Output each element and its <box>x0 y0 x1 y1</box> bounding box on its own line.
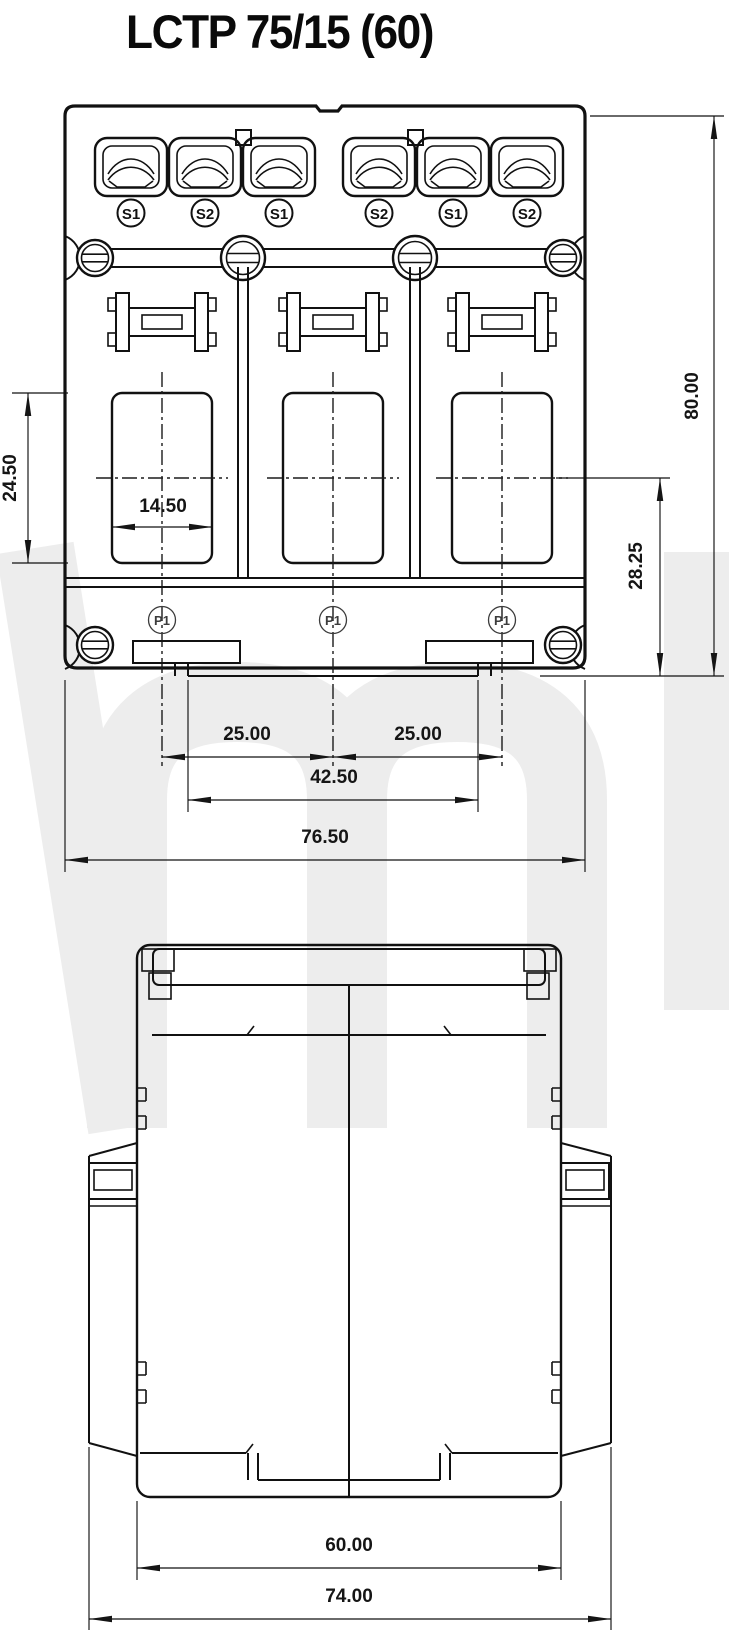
terminal-clamps <box>95 138 563 196</box>
primary-terminal-label: P1 <box>154 613 170 628</box>
fixing-screw <box>221 236 265 280</box>
terminal-clamp <box>243 138 315 196</box>
secondary-terminal-labels: S1 S2 S1 S2 S1 S2 <box>118 200 541 227</box>
primary-terminal-label: P1 <box>325 613 341 628</box>
svg-text:25.00: 25.00 <box>394 724 442 745</box>
screw-recess-scallops <box>65 236 585 669</box>
corner-screw <box>545 627 581 663</box>
terminal-label: S2 <box>518 206 536 223</box>
corner-screw <box>77 240 113 276</box>
watermark-logo <box>35 548 697 1128</box>
right-flange <box>561 1143 611 1456</box>
fixing-screw <box>393 236 437 280</box>
technical-drawing: S1 S2 S1 S2 S1 S2 <box>0 0 729 1637</box>
drawing-page: LCTP 75/15 (60) <box>0 0 729 1637</box>
terminal-label: S1 <box>444 206 462 223</box>
primary-terminal-label: P1 <box>494 613 510 628</box>
terminal-label: S2 <box>196 206 214 223</box>
terminal-clamp <box>417 138 489 196</box>
terminal-clamp <box>343 138 415 196</box>
svg-text:42.50: 42.50 <box>310 767 358 788</box>
terminal-label: S1 <box>270 206 288 223</box>
dim-window-height: 24.50 <box>0 393 68 563</box>
dim-body-width: 60.00 <box>137 1501 561 1580</box>
bottom-panel: P1 P1 P1 <box>66 578 584 663</box>
svg-text:80.00: 80.00 <box>682 372 703 420</box>
terminal-clamp <box>169 138 241 196</box>
svg-text:14.50: 14.50 <box>139 496 187 517</box>
left-flange <box>89 1143 137 1456</box>
svg-text:60.00: 60.00 <box>325 1535 373 1556</box>
corner-screw <box>77 627 113 663</box>
svg-text:24.50: 24.50 <box>0 454 21 502</box>
terminal-clamp <box>95 138 167 196</box>
screw-bar <box>77 236 581 280</box>
svg-text:74.00: 74.00 <box>325 1586 373 1607</box>
busbar-brackets <box>108 293 556 351</box>
terminal-label: S2 <box>370 206 388 223</box>
terminal-label: S1 <box>122 206 140 223</box>
svg-text:25.00: 25.00 <box>223 724 271 745</box>
svg-text:28.25: 28.25 <box>626 542 647 590</box>
corner-screw <box>545 240 581 276</box>
terminal-clamp <box>491 138 563 196</box>
front-body-outline <box>65 106 585 668</box>
partition-walls <box>238 267 420 578</box>
svg-text:76.50: 76.50 <box>301 827 349 848</box>
